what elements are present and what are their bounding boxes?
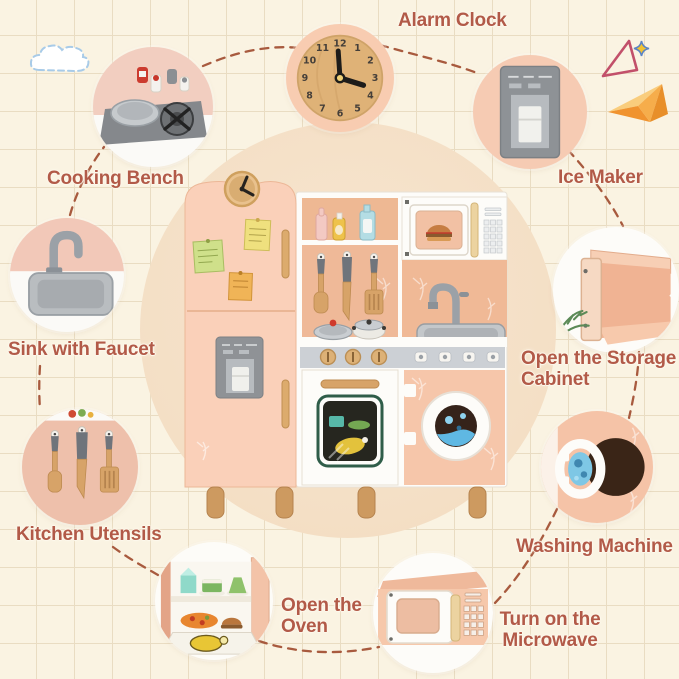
washer-porthole [422, 392, 490, 460]
callout-storage-cabinet [553, 227, 679, 353]
utensil-rack [302, 245, 398, 337]
fridge-clock-icon [225, 172, 259, 206]
label-utensils: Kitchen Utensils [16, 525, 162, 546]
svg-text:2: 2 [367, 56, 374, 67]
callout-washing-machine [541, 411, 653, 523]
label-ice-maker: Ice Maker [558, 168, 643, 189]
callout-cooking-bench [93, 47, 213, 167]
oven [302, 370, 398, 485]
fridge [185, 172, 296, 487]
svg-text:5: 5 [354, 103, 361, 114]
svg-text:8: 8 [306, 91, 313, 102]
pot-with-lid-icon [352, 319, 386, 339]
product-feature-diagram: 12 1 2 3 4 5 6 7 8 9 10 11 [0, 0, 679, 679]
callout-microwave [373, 553, 493, 673]
svg-text:4: 4 [367, 91, 374, 102]
callout-utensils [22, 409, 138, 525]
svg-text:1: 1 [354, 43, 361, 54]
ice-dispenser [216, 337, 263, 398]
kitchen-legs [207, 487, 486, 518]
label-cooking-bench: Cooking Bench [47, 169, 184, 190]
paper-plane-icon [608, 84, 674, 124]
cloud-icon [26, 40, 92, 78]
play-kitchen-illustration [183, 170, 509, 522]
callout-alarm-clock: 12 1 2 3 4 5 6 7 8 9 10 11 [286, 24, 394, 132]
sparkle-icon [633, 40, 650, 57]
callout-sink [10, 218, 124, 332]
svg-text:12: 12 [333, 39, 346, 50]
stove-knobs [321, 350, 387, 365]
sticky-note-green [193, 238, 224, 273]
sticky-note-yellow [244, 217, 271, 250]
cabinet-door-icon [581, 259, 601, 341]
sink-area [402, 260, 507, 345]
svg-text:11: 11 [316, 43, 329, 54]
callout-oven [155, 542, 273, 660]
open-microwave-door-icon [387, 591, 460, 643]
ice-dispenser-icon [501, 66, 560, 157]
control-strip [300, 347, 505, 368]
svg-text:7: 7 [319, 103, 326, 114]
svg-text:10: 10 [303, 56, 317, 67]
sticky-note-orange [229, 271, 253, 301]
label-washing-machine: Washing Machine [516, 537, 673, 558]
fridge-handle-upper [282, 230, 289, 278]
connector-sink-utensils [39, 366, 40, 409]
label-storage-cabinet: Open the Storage Cabinet [521, 349, 676, 390]
shelf-unit [302, 198, 398, 246]
label-microwave: Turn on the Microwave [497, 610, 603, 651]
burner-icon [161, 103, 193, 135]
svg-text:6: 6 [337, 108, 344, 119]
connector-bench-clock [203, 47, 300, 66]
svg-text:9: 9 [302, 73, 309, 84]
callout-ice-maker [473, 55, 587, 169]
connector-oven-microwave [259, 641, 379, 652]
label-alarm-clock: Alarm Clock [398, 11, 507, 32]
label-sink: Sink with Faucet [8, 340, 155, 361]
built-in-microwave [402, 197, 507, 260]
label-oven: Open the Oven [281, 596, 362, 637]
svg-text:3: 3 [372, 73, 379, 84]
connector-clock-icemaker [380, 45, 477, 73]
fridge-handle-lower [282, 380, 289, 428]
connector-utensils-oven [113, 547, 158, 575]
washing-machine [404, 370, 505, 485]
microwave-keypad [484, 208, 502, 253]
